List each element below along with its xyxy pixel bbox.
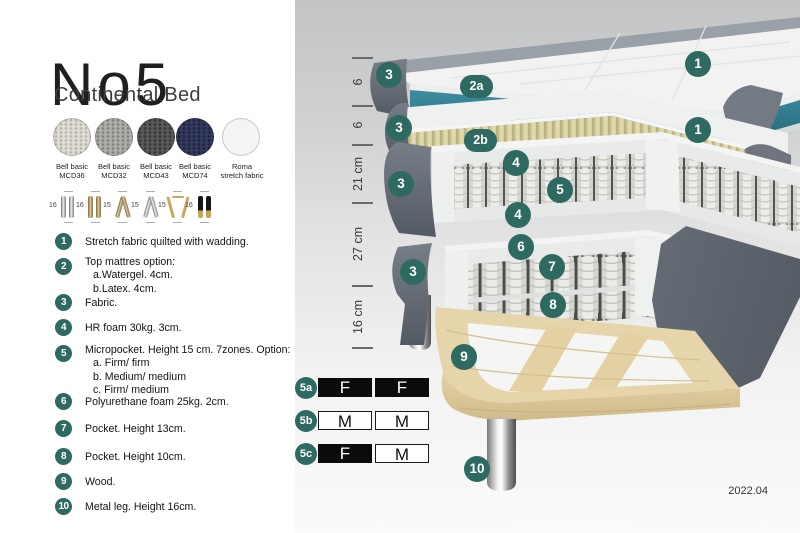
- spec-badge: 8: [55, 448, 72, 465]
- leg-option: 15: [106, 189, 134, 231]
- page: No5 Continental Bed Bell basicMCD36 Bell…: [0, 0, 800, 533]
- callout-fabric: 3: [376, 62, 402, 88]
- leg-height: 16: [185, 202, 193, 209]
- leg-option: 15: [161, 189, 189, 231]
- firmness-cell: M: [318, 411, 372, 430]
- callout-fabric: 3: [400, 259, 426, 285]
- callout-pocket-13: 7: [539, 254, 565, 280]
- fabric-swatch: [222, 118, 260, 156]
- leg-option: 16: [188, 189, 216, 231]
- spec-badge: 10: [55, 498, 72, 515]
- leg-option: 15: [134, 189, 162, 231]
- fabric-swatch-label: Bell basicMCD36: [48, 162, 96, 180]
- firmness-row-label: 5b: [295, 410, 317, 432]
- spec-item: Polyurethane foam 25kg. 2cm.: [85, 396, 300, 409]
- ruler-label: 16 cm: [351, 285, 365, 349]
- metal-leg-front: [487, 417, 516, 491]
- fabric-swatch-label: Bell basicMCD32: [90, 162, 138, 180]
- callout-micropocket: 5: [547, 177, 573, 203]
- spec-badge: 5: [55, 345, 72, 362]
- spec-badge: 6: [55, 393, 72, 410]
- spec-item: Pocket. Height 10cm.: [85, 451, 300, 464]
- callout-watergel: 2a: [460, 75, 493, 98]
- firmness-cell: F: [318, 378, 372, 397]
- spec-badge: 4: [55, 319, 72, 336]
- spec-item: HR foam 30kg. 3cm.: [85, 322, 300, 335]
- callout-stretch-fabric: 1: [685, 51, 711, 77]
- spec-panel: No5 Continental Bed Bell basicMCD36 Bell…: [0, 0, 295, 533]
- callout-wood: 9: [451, 344, 477, 370]
- version-stamp: 2022.04: [678, 485, 768, 497]
- leg-height: 16: [76, 202, 84, 209]
- fabric-swatch: [176, 118, 214, 156]
- leg-option: 16: [52, 189, 80, 231]
- leg-option: 16: [79, 189, 107, 231]
- callout-fabric: 3: [386, 115, 412, 141]
- leg-height: 15: [158, 202, 166, 209]
- callout-hr-foam: 4: [505, 202, 531, 228]
- spec-item: Pocket. Height 13cm.: [85, 423, 300, 436]
- callout-pu-foam: 6: [508, 234, 534, 260]
- ruler-label: 27 cm: [351, 212, 365, 276]
- spec-badge: 1: [55, 233, 72, 250]
- spec-badge: 2: [55, 258, 72, 275]
- firmness-cell: M: [375, 411, 429, 430]
- callout-fabric: 3: [388, 171, 414, 197]
- callout-stretch-fabric: 1: [685, 117, 711, 143]
- fabric-swatch-label: Romastretch fabric: [218, 162, 266, 180]
- leg-twist-gold-icon: [114, 191, 132, 223]
- ruler-label: 21 cm: [351, 142, 365, 206]
- firmness-cell: F: [375, 378, 429, 397]
- leg-height: 15: [131, 202, 139, 209]
- fabric-swatch: [137, 118, 175, 156]
- firmness-cell: M: [375, 444, 429, 463]
- spec-item: Fabric.: [85, 297, 300, 310]
- spec-item: Micropocket. Height 15 cm. 7zones. Optio…: [85, 344, 300, 398]
- leg-height: 16: [49, 202, 57, 209]
- spec-item: Stretch fabric quilted with wadding.: [85, 236, 300, 249]
- spec-badge: 3: [55, 294, 72, 311]
- callout-latex: 2b: [464, 129, 497, 152]
- product-subtitle: Continental Bed: [54, 84, 201, 107]
- spec-item: Top mattres option: a.Watergel. 4cm. b.L…: [85, 256, 300, 296]
- spec-badge: 7: [55, 420, 72, 437]
- spec-item: Wood.: [85, 476, 300, 489]
- firmness-row-label: 5c: [295, 443, 317, 465]
- callout-hr-foam: 4: [503, 150, 529, 176]
- callout-metal-leg: 10: [464, 456, 490, 482]
- firmness-row-label: 5a: [295, 377, 317, 399]
- callout-pocket-10: 8: [540, 292, 566, 318]
- spec-badge: 9: [55, 473, 72, 490]
- fabric-swatch-label: Bell basicMCD74: [171, 162, 219, 180]
- fabric-swatch: [53, 118, 91, 156]
- leg-height: 15: [103, 202, 111, 209]
- spec-item: Metal leg. Height 16cm.: [85, 501, 300, 514]
- leg-black-gold-icon: [196, 191, 214, 223]
- firmness-cell: F: [318, 444, 372, 463]
- fabric-swatch: [95, 118, 133, 156]
